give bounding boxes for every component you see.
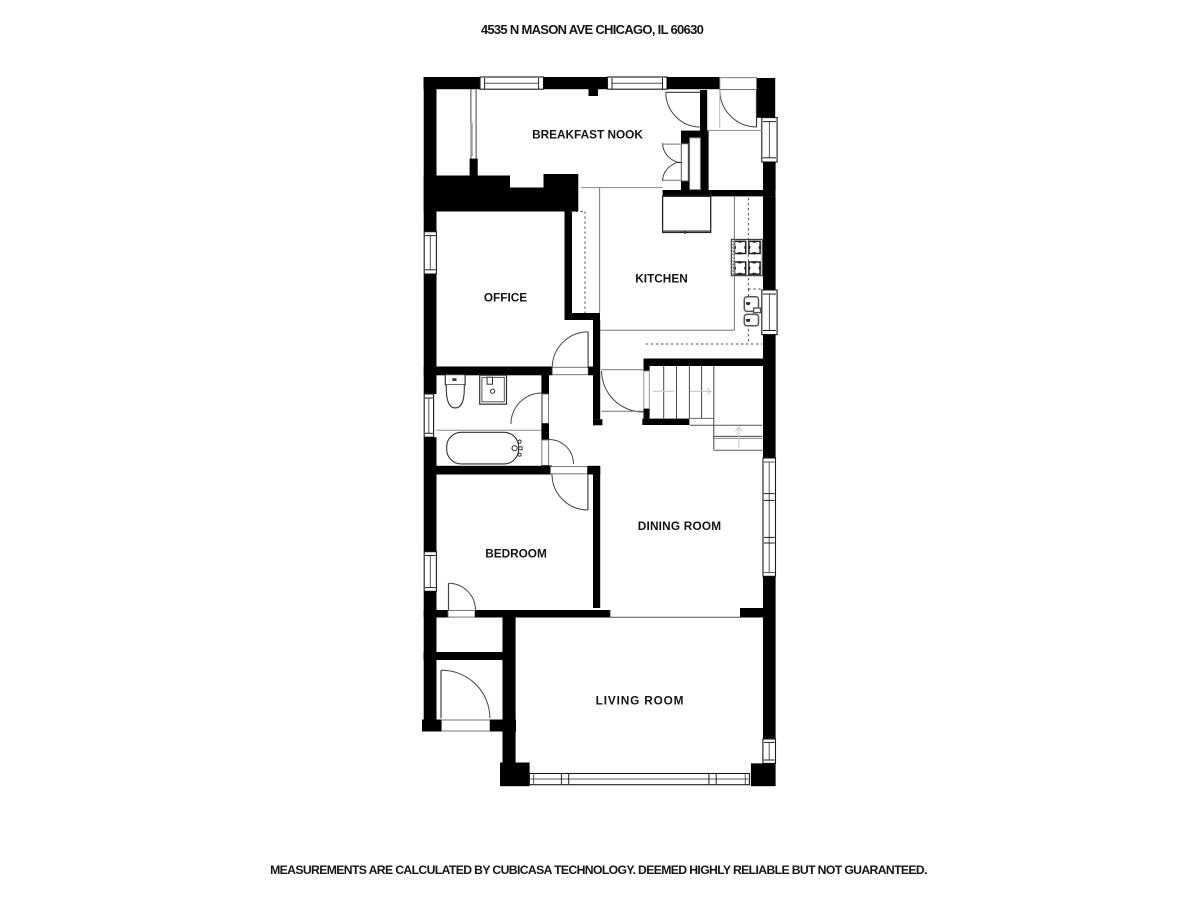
svg-text:BREAKFAST NOOK: BREAKFAST NOOK — [532, 127, 643, 141]
svg-text:OFFICE: OFFICE — [484, 291, 527, 305]
svg-text:LIVING ROOM: LIVING ROOM — [596, 694, 685, 708]
svg-text:4535 N MASON AVE CHICAGO, IL 6: 4535 N MASON AVE CHICAGO, IL 60630 — [481, 22, 704, 37]
svg-text:DINING ROOM: DINING ROOM — [638, 519, 721, 533]
svg-text:MEASUREMENTS ARE CALCULATED BY: MEASUREMENTS ARE CALCULATED BY CUBICASA … — [270, 863, 927, 877]
svg-text:BEDROOM: BEDROOM — [485, 546, 547, 560]
svg-text:KITCHEN: KITCHEN — [635, 272, 687, 286]
